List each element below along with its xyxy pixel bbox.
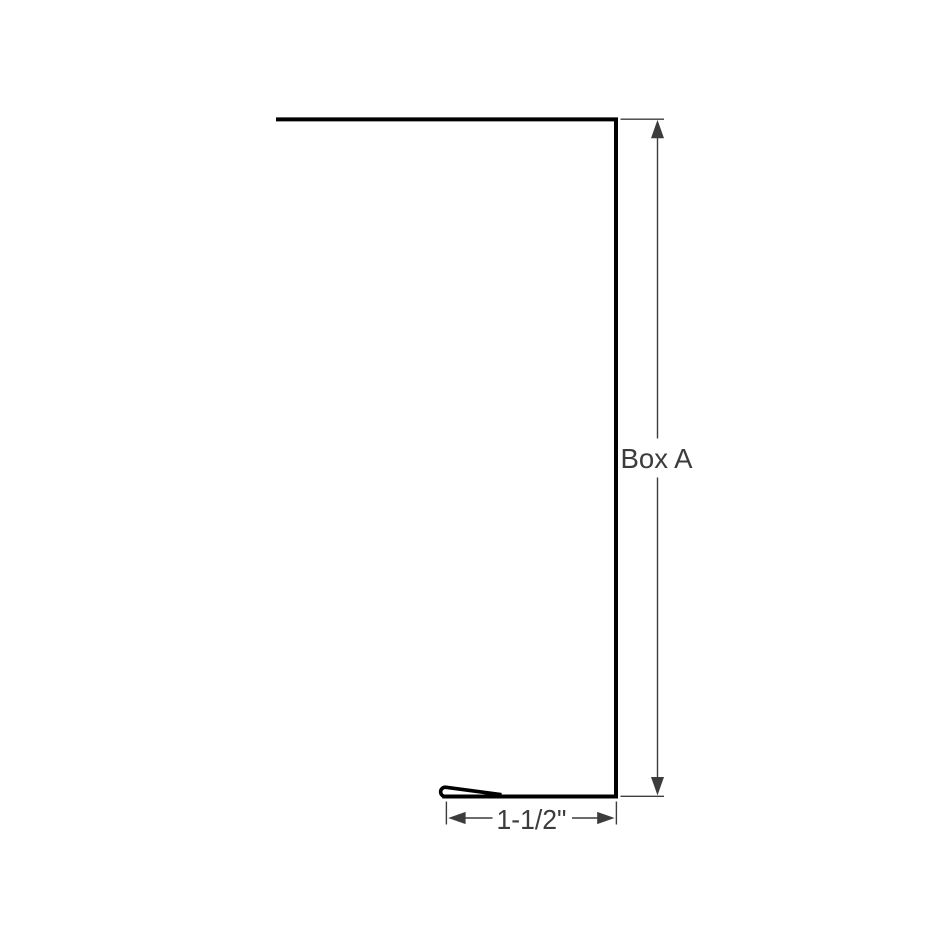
svg-text:Box A: Box A — [621, 443, 693, 474]
svg-text:1-1/2": 1-1/2" — [497, 804, 567, 835]
